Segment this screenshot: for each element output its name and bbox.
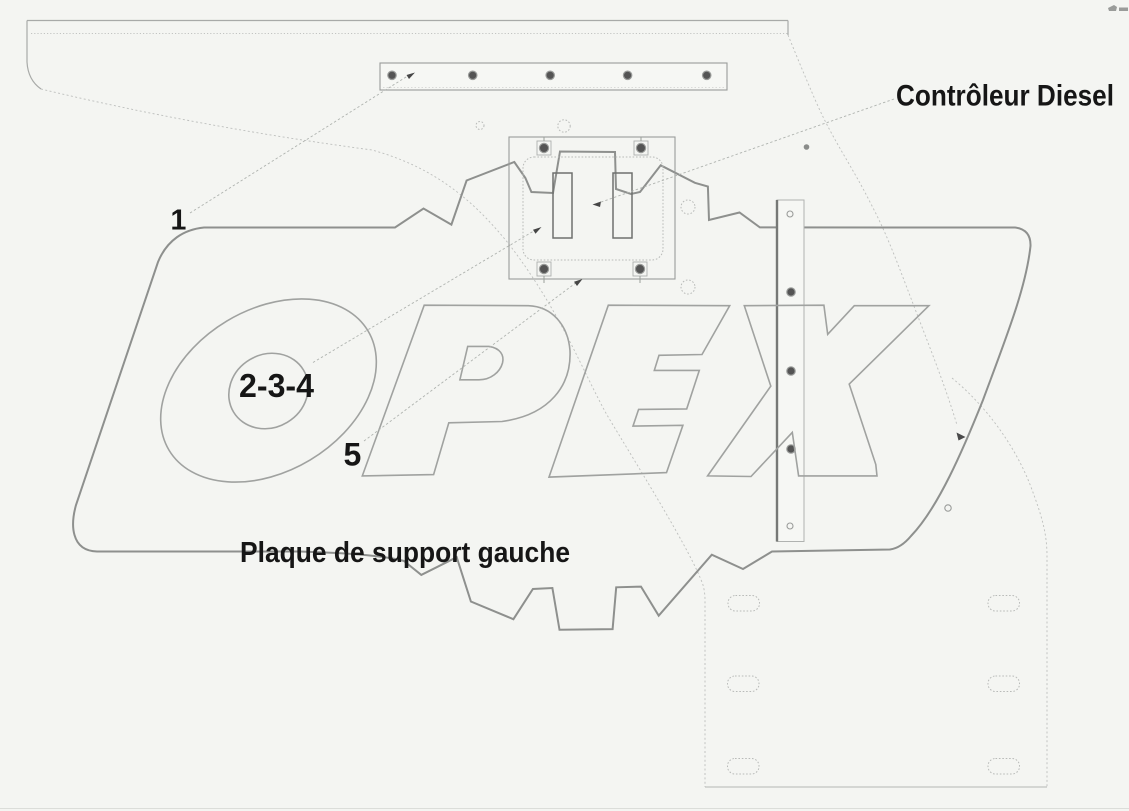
svg-text:5: 5	[344, 437, 362, 473]
svg-text:Contrôleur Diesel: Contrôleur Diesel	[896, 79, 1114, 112]
svg-text:2-3-4: 2-3-4	[239, 367, 315, 404]
svg-text:1: 1	[171, 205, 187, 237]
svg-text:Plaque de support gauche: Plaque de support gauche	[240, 537, 570, 569]
